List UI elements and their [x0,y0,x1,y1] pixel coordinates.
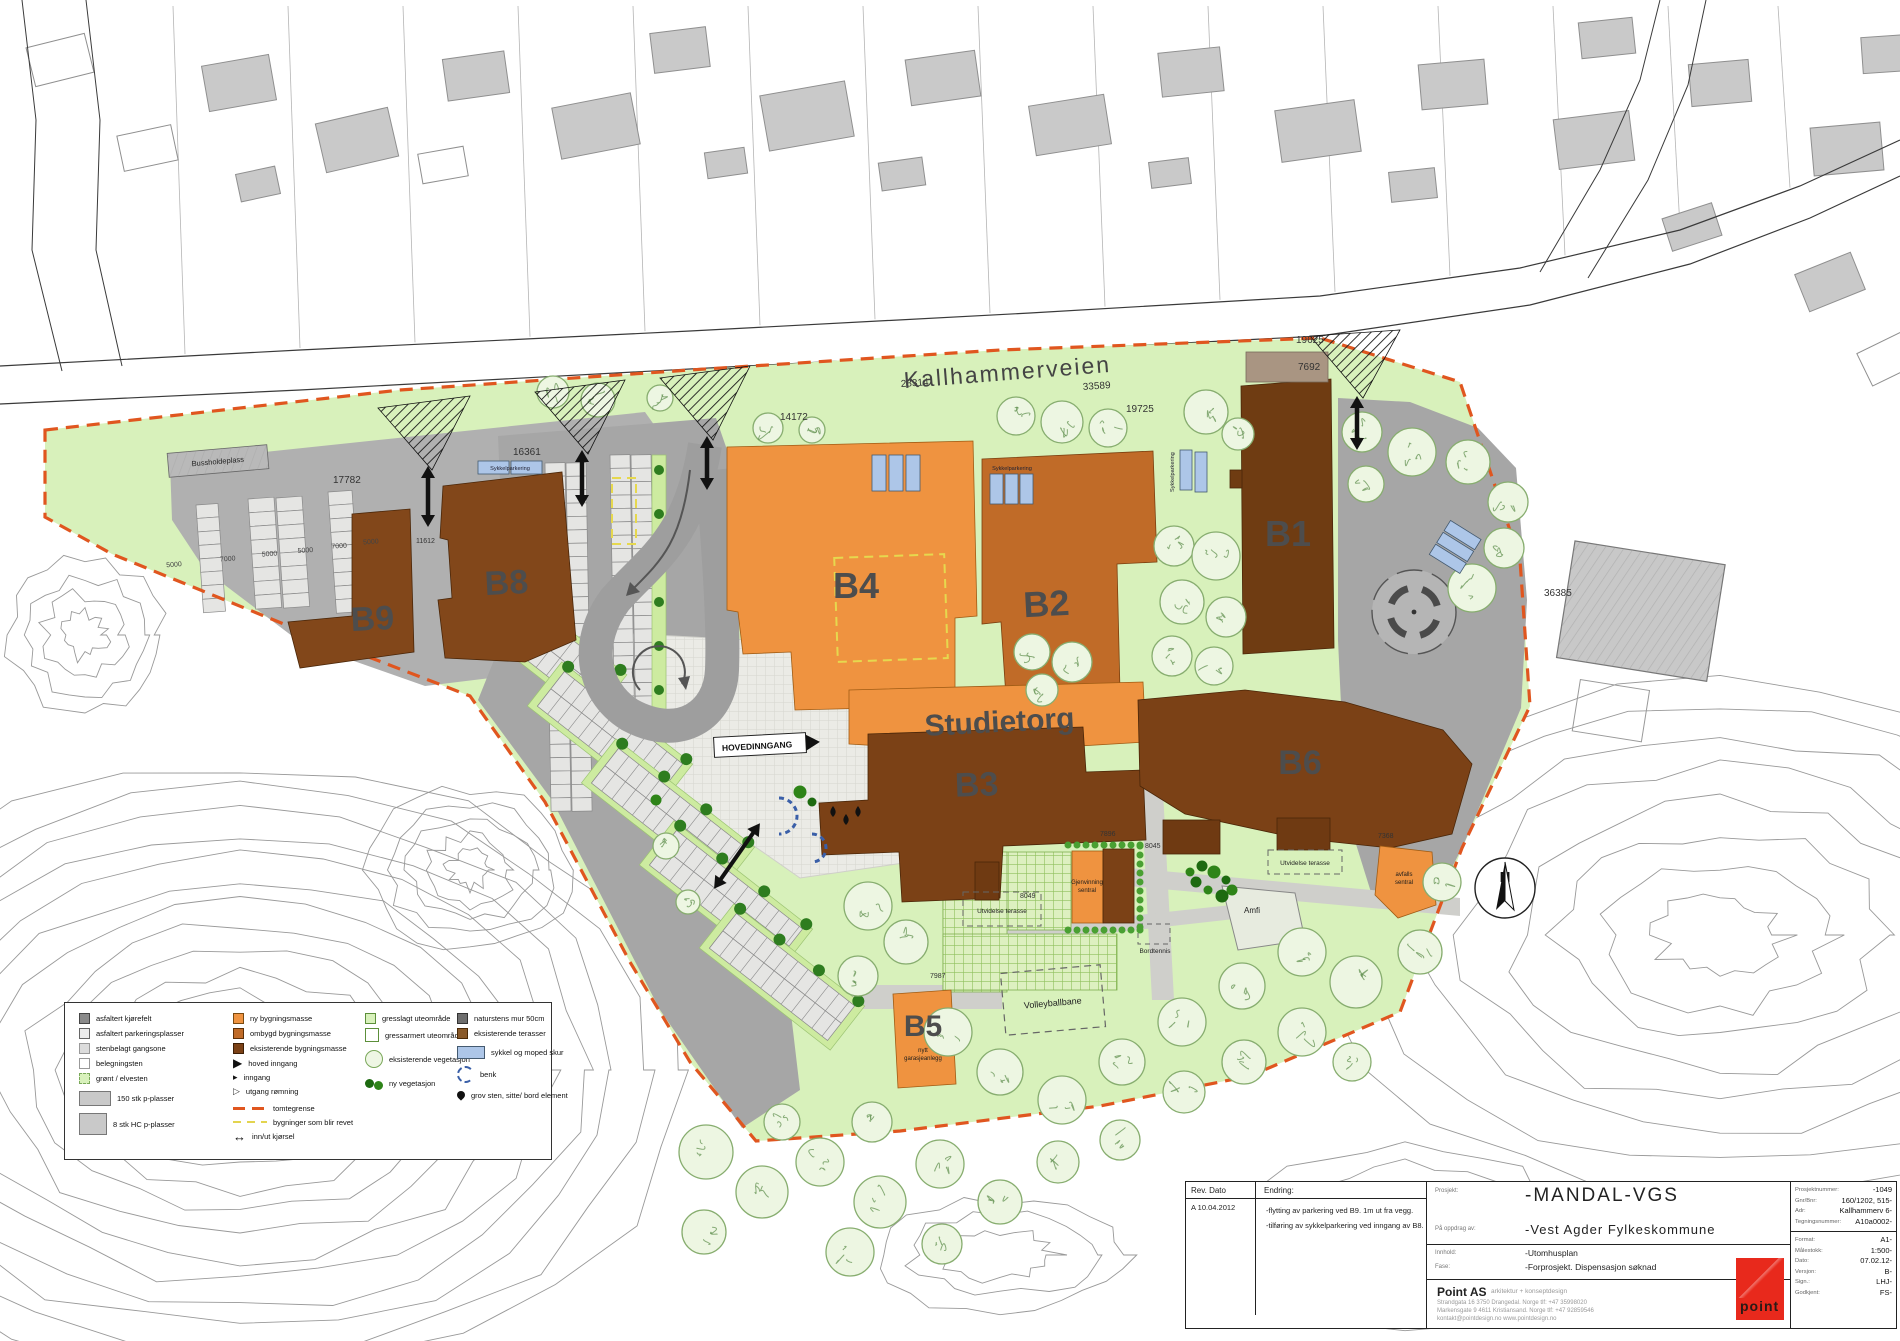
parking-stall [248,497,275,513]
hedge-dot [1137,897,1144,904]
parking-stall [610,481,630,495]
circle-shape [1100,1120,1140,1160]
circle-shape [997,397,1035,435]
contour-line [1509,794,1900,1075]
island-bush [654,509,664,519]
parcel-line [863,6,875,319]
legend-label: asfaltert kjørefelt [96,1014,151,1023]
context-house [315,107,398,172]
circle-shape [1446,440,1490,484]
legend-label: grov sten, sitte/ bord element [471,1091,568,1100]
context-house [1389,168,1438,203]
new-veg-bush [1222,876,1231,885]
label-sykkelparkering: Sykkelparkering [992,466,1032,472]
new-veg-bush [1227,885,1238,896]
label-b3: B3 [954,765,999,804]
dim-16361: 16361 [513,447,541,458]
dim-7896: 7896 [1100,831,1116,838]
meta-label: Adr: [1795,1206,1806,1217]
new-veg-bush [1216,890,1229,903]
new-veg-bush [1197,861,1208,872]
hedge-dot [1137,906,1144,913]
tree [1219,963,1265,1009]
parking-stall [282,579,309,595]
legend-label: belegningsten [96,1059,143,1068]
contour-line [24,575,149,697]
hedge-dot [1137,861,1144,868]
contour-line [4,555,166,713]
content-label: Innhold: [1435,1250,1456,1256]
meta-label: Format: [1795,1235,1815,1246]
parcel-line [978,6,990,313]
circle-shape [1348,466,1384,502]
circle-shape [1219,963,1265,1009]
parking-stall [550,744,570,758]
tree [1423,863,1461,901]
tree [854,1176,906,1228]
island-bush [654,597,664,607]
legend-item: asfaltert parkeringsplasser [79,1028,229,1039]
tree [844,882,892,930]
point-logo: point [1736,1258,1784,1320]
legend-label: benk [480,1070,496,1079]
client-label: På oppdrag av: [1435,1226,1476,1232]
meta-value: A1- [1880,1235,1892,1246]
parking-stall [634,629,654,643]
parking-stall [199,544,222,559]
parking-stall [330,517,355,532]
asphalt-lane-swatch-icon [79,1013,90,1024]
context-house [1275,100,1361,163]
tree [1052,642,1092,682]
parking-stall [201,571,224,586]
tree [653,833,679,859]
parking-stall [551,798,571,812]
label-b2: B2 [1022,582,1070,625]
meta-label: Sign.: [1795,1277,1810,1288]
tree [1484,528,1524,568]
revision-line-2: -tilføring av sykkelparkering ved inngan… [1266,1218,1424,1233]
context-house [1857,330,1900,386]
phase-label: Fase: [1435,1264,1450,1270]
firm-address-2: Markensgate 9 4611 Kristiansand. Norge t… [1437,1308,1594,1314]
project-label: Prosjekt: [1435,1188,1458,1194]
context-house [1662,203,1722,251]
contour-line [388,803,554,931]
legend-item: grov sten, sitte/ bord element [457,1090,549,1100]
label-b6: B6 [1278,744,1321,782]
tree [1278,1008,1326,1056]
parking-stall [567,503,587,517]
legend-item: gresslagt uteområde [365,1013,457,1024]
circle-shape [1278,928,1326,976]
hedge-dot [1083,927,1090,934]
parking-stall [328,490,353,505]
tree [1099,1039,1145,1085]
legend-label: ny vegetasjon [389,1079,435,1088]
label-gjenvinning-1: Gjenvinning [1071,880,1103,886]
dim-36385: 36385 [1544,588,1572,599]
parking-stall [567,516,587,530]
new-veg-bush [651,795,662,806]
parking-stall [631,468,651,482]
contour-line [443,848,495,893]
circle-shape [1037,1141,1079,1183]
meta-row: Adr:Kallhammerv 6- [1795,1206,1892,1217]
label-b1: B1 [1265,513,1311,554]
label-amfi: Amfi [1244,906,1260,915]
legend-item: gressarmert uteområde [365,1028,457,1042]
meta-value: B- [1885,1267,1893,1278]
tree [1206,597,1246,637]
parking-stall [568,556,588,570]
circle-shape [1163,1071,1205,1113]
parking-stall [610,455,630,469]
stall-dim: 5000 [363,538,379,546]
legend-label: naturstens mur 50cm [474,1014,544,1023]
parking-stall [550,771,570,785]
boulder-icon [455,1089,466,1100]
context-house [1029,94,1112,155]
context-houses [26,17,1900,386]
tree [1488,482,1528,522]
firm-tagline: arkitektur + konseptdesign [1491,1288,1567,1295]
new-veg-bush [1208,866,1221,879]
legend-item: asfaltert kjørefelt [79,1013,229,1024]
context-house [760,81,854,151]
tree [1160,580,1204,624]
circle-shape [682,1210,726,1254]
hedge-dot [1119,927,1126,934]
meta-label: Målestokk: [1795,1246,1823,1257]
parking-stall [611,495,631,509]
meta-label: Dato: [1795,1256,1809,1267]
parking-stall [198,530,221,545]
dim-19725: 19725 [1126,404,1154,415]
parking-stall [329,504,354,519]
circle-shape [1052,642,1092,682]
context-house [1795,252,1866,312]
main-entrance-arrow-icon: ▶ [233,1059,242,1067]
terrace-swatch-icon [457,1028,468,1039]
circle-shape [1398,930,1442,974]
circle-shape [653,833,679,859]
parking-stall [250,525,277,541]
circle-shape [1448,564,1496,612]
circle-shape [1195,647,1233,685]
parcel-line [403,6,415,342]
tree [1192,532,1240,580]
green-swatch-icon [79,1073,90,1084]
existing-tree-icon [365,1050,383,1068]
legend-label: bygninger som blir revet [273,1118,353,1127]
revision-notes: -flytting av parkering ved B9. 1m ut fra… [1256,1199,1424,1315]
stone-walkway-swatch-icon [79,1043,90,1054]
context-house [552,93,640,159]
tree [1446,440,1490,484]
parking-stall [255,594,282,610]
hedge-dot [1074,842,1081,849]
legend-label: ny bygningsmasse [250,1014,312,1023]
meta-value: LHJ- [1876,1277,1892,1288]
hedge-dot [1137,842,1144,849]
meta-label: Versjon: [1795,1267,1816,1278]
circle-shape [852,1102,892,1142]
contour-line [362,786,573,949]
meta-label: Gnr/Bnr: [1795,1196,1817,1207]
circle-shape [844,882,892,930]
meta-value: 1:500- [1871,1246,1892,1257]
phase-value: -Forprosjekt. Dispensasjon søknad [1525,1262,1656,1272]
parking-stall [611,535,631,549]
parking-stall [634,642,654,656]
revision-header-date: Rev. Dato [1186,1182,1256,1198]
context-house [905,50,981,105]
circle-shape [676,890,700,914]
context-house [1810,122,1884,176]
tree [852,1102,892,1142]
circle-shape [1089,409,1127,447]
parking-stall [612,548,632,562]
parking-150-swatch-icon [79,1091,111,1106]
hedge-dot [1101,842,1108,849]
tree [1154,526,1194,566]
parcel-line [748,6,760,325]
legend-item: eksisterende vegetasjon [365,1050,457,1068]
meta-value: -1049 [1873,1185,1892,1196]
parcel-line [288,6,300,348]
legend-label: eksisterende terasser [474,1029,546,1038]
circle-shape [1192,532,1240,580]
parking-stall [631,481,651,495]
legend-item: ▷utgang rømning [233,1086,361,1096]
north-arrow: N [1475,858,1535,918]
contour-line [426,831,513,910]
parking-stall [631,455,651,469]
legend-label: grønt / elvesten [96,1074,148,1083]
firm-contact: kontakt@pointdesign.no www.pointdesign.n… [1437,1316,1557,1322]
parking-stall [634,602,654,616]
circle-shape [1488,482,1528,522]
circle-shape [977,1049,1023,1095]
hedge-dot [1065,842,1072,849]
asphalt-parking-swatch-icon [79,1028,90,1039]
circle-shape [1484,528,1524,568]
revision-id: A 10.04.2012 [1186,1199,1256,1315]
circle-shape [753,413,783,443]
dim-17782: 17782 [333,475,361,486]
label-sykkelparkering: Sykkelparkering [490,466,530,472]
context-house [1158,47,1224,97]
legend-label: sykkel og moped skur [491,1048,564,1057]
new-veg-bush [1204,886,1213,895]
dim-11612: 11612 [416,538,435,545]
legend-item: eksisterende terasser [457,1028,549,1039]
parking-stall [572,798,592,812]
label-sykkelparkering: Sykkelparkering [1170,452,1176,492]
meta-row: Sign.:LHJ- [1795,1277,1892,1288]
legend-label: gresslagt uteområde [382,1014,450,1023]
label-garasje-1: nytt [918,1048,928,1054]
label-avfalls-2: sentral [1395,880,1413,886]
legend-item: grønt / elvesten [79,1073,229,1084]
hedge-dot [1083,842,1090,849]
circle-shape [1154,526,1194,566]
hedge-dot [1110,842,1117,849]
tree [978,1180,1022,1224]
contour-line [1650,894,1798,976]
revision-header-change: Endring: [1256,1186,1294,1195]
parking-stall [551,784,571,798]
hedge-dot [1137,888,1144,895]
new-vegetation-icon [365,1079,374,1088]
label-gjenvinning-2: sentral [1078,888,1096,894]
revision-table: Rev. Dato Endring: A 10.04.2012 -flyttin… [1186,1182,1427,1328]
label-avfalls-1: avfalls [1395,872,1412,878]
island-bush [654,685,664,695]
meta-row: Godkjent:FS- [1795,1288,1892,1299]
meta-value: 07.02.12- [1860,1256,1892,1267]
legend-item: eksisterende bygningsmasse [233,1043,361,1054]
label-b8: B8 [484,563,529,603]
tree [736,1166,788,1218]
hedge-dot [1092,927,1099,934]
legend-label: hoved inngang [248,1059,297,1068]
parking-stall [283,593,310,609]
circle-shape [978,1180,1022,1224]
bike-shed-swatch-icon [457,1046,485,1059]
legend-col-3: gresslagt uteområde gressarmert uteområd… [365,1013,457,1088]
rebuilt-building-swatch-icon [233,1028,244,1039]
circle-shape [1423,863,1461,901]
entrance-arrow-icon: ▸ [233,1073,238,1081]
legend-label: inn/ut kjørsel [252,1132,295,1141]
circle-shape [1388,428,1436,476]
legend-label: eksisterende bygningsmasse [250,1044,347,1053]
tree [679,1125,733,1179]
legend-label: utgang rømning [246,1087,299,1096]
meta-row: Prosjektnummer:-1049 [1795,1185,1892,1196]
contour-line [61,608,111,663]
grass-grid-swatch-icon [365,1028,379,1042]
stone-wall-swatch-icon [457,1013,468,1024]
circle-shape [1333,1043,1371,1081]
circle-shape [1158,998,1206,1046]
circle-shape [1206,597,1246,637]
parcel-line [1778,6,1790,188]
hedge-dot [1065,927,1072,934]
hedge-dot [1101,927,1108,934]
stall-dim: 7000 [220,555,236,563]
tree [764,1104,800,1140]
hedge-dot [1119,842,1126,849]
island-bush [654,465,664,475]
tree [1448,564,1496,612]
tree [1195,647,1233,685]
meta-value: 160/1202, 515- [1842,1196,1892,1207]
hedge-dot [1137,852,1144,859]
new-building-swatch-icon [233,1013,244,1024]
context-house [1418,59,1488,110]
meta-row: Tegningsnummer:A10a0002- [1795,1217,1892,1228]
parking-stall [567,530,587,544]
firm-name: Point AS [1437,1285,1487,1299]
boundary-line-icon [233,1107,267,1110]
legend-item: benk [457,1066,549,1083]
legend-item: ny vegetasjon [365,1078,457,1088]
legend-item: 150 stk p-plasser [79,1091,229,1106]
parking-stall [632,508,652,522]
parking-stall [197,517,220,532]
circle-shape [1152,636,1192,676]
parking-stall [611,522,631,536]
tree [676,890,700,914]
meta-row: Format:A1- [1795,1235,1892,1246]
legend-label: tomtegrense [273,1104,315,1113]
tree [1333,1043,1371,1081]
tree [1158,998,1206,1046]
project-panel: Prosjekt: -MANDAL-VGS På oppdrag av: -Ve… [1427,1182,1791,1328]
tree [977,1049,1023,1095]
meta-row: Gnr/Bnr:160/1202, 515- [1795,1196,1892,1207]
circle-shape [1278,1008,1326,1056]
meta-label: Godkjent: [1795,1288,1820,1299]
tree [997,397,1035,435]
new-veg-bush [794,786,807,799]
legend-item: naturstens mur 50cm [457,1013,549,1024]
tree [1330,956,1382,1008]
tree [916,1140,964,1188]
legend-item: stenbelagt gangsone [79,1043,229,1054]
context-house [442,51,509,101]
context-house [1861,34,1900,73]
legend-label: asfaltert parkeringsplasser [96,1029,184,1038]
dim-7692: 7692 [1298,362,1321,373]
dim-14172: 14172 [780,412,808,423]
meta-panel: Prosjektnummer:-1049 Gnr/Bnr:160/1202, 5… [1791,1182,1896,1328]
context-house [202,54,277,111]
existing-building-swatch-icon [233,1043,244,1054]
parcel-line [633,6,645,331]
parking-stall [634,615,654,629]
tree [1037,1141,1079,1183]
legend-item: bygninger som blir revet [233,1117,361,1127]
drawing-sheet: 28314 33589 19625 7692 14172 19725 16361… [0,0,1900,1341]
circle-shape [736,1166,788,1218]
circle-shape [1038,1076,1086,1124]
tree [1222,1040,1266,1084]
paving-swatch-icon [79,1058,90,1069]
legend-col-4: naturstens mur 50cm eksisterende terasse… [457,1013,549,1100]
new-veg-bush [808,798,817,807]
stall-dim: 5000 [262,550,278,558]
legend-item: ▶hoved inngang [233,1058,361,1068]
exit-arrow-icon: ▷ [233,1087,240,1095]
circle-shape [884,920,928,964]
legend-item: 8 stk HC p-plasser [79,1113,229,1135]
circle-shape [1160,580,1204,624]
context-house [1688,59,1751,106]
title-block: Rev. Dato Endring: A 10.04.2012 -flyttin… [1185,1181,1897,1329]
new-veg-bush [1191,877,1202,888]
hedge-dot [1110,927,1117,934]
parking-stall [571,757,591,771]
in-out-arrow-icon: ↔ [233,1132,246,1141]
hedge-dot [1074,927,1081,934]
tree [1014,634,1050,670]
new-veg-bush [1186,868,1195,877]
tree [1100,1120,1140,1160]
